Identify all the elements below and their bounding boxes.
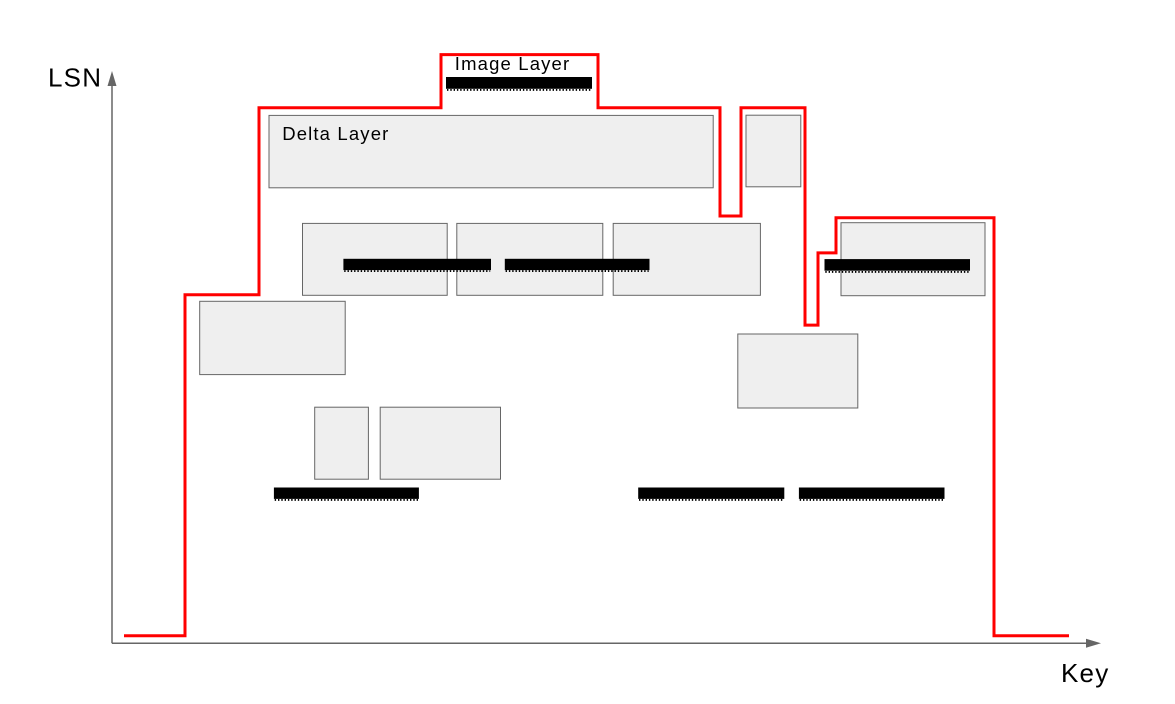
- svg-text:Image Layer: Image Layer: [455, 53, 570, 74]
- svg-text:Key: Key: [1061, 658, 1109, 688]
- svg-text:Delta Layer: Delta Layer: [282, 123, 389, 144]
- svg-text:LSN: LSN: [48, 62, 102, 92]
